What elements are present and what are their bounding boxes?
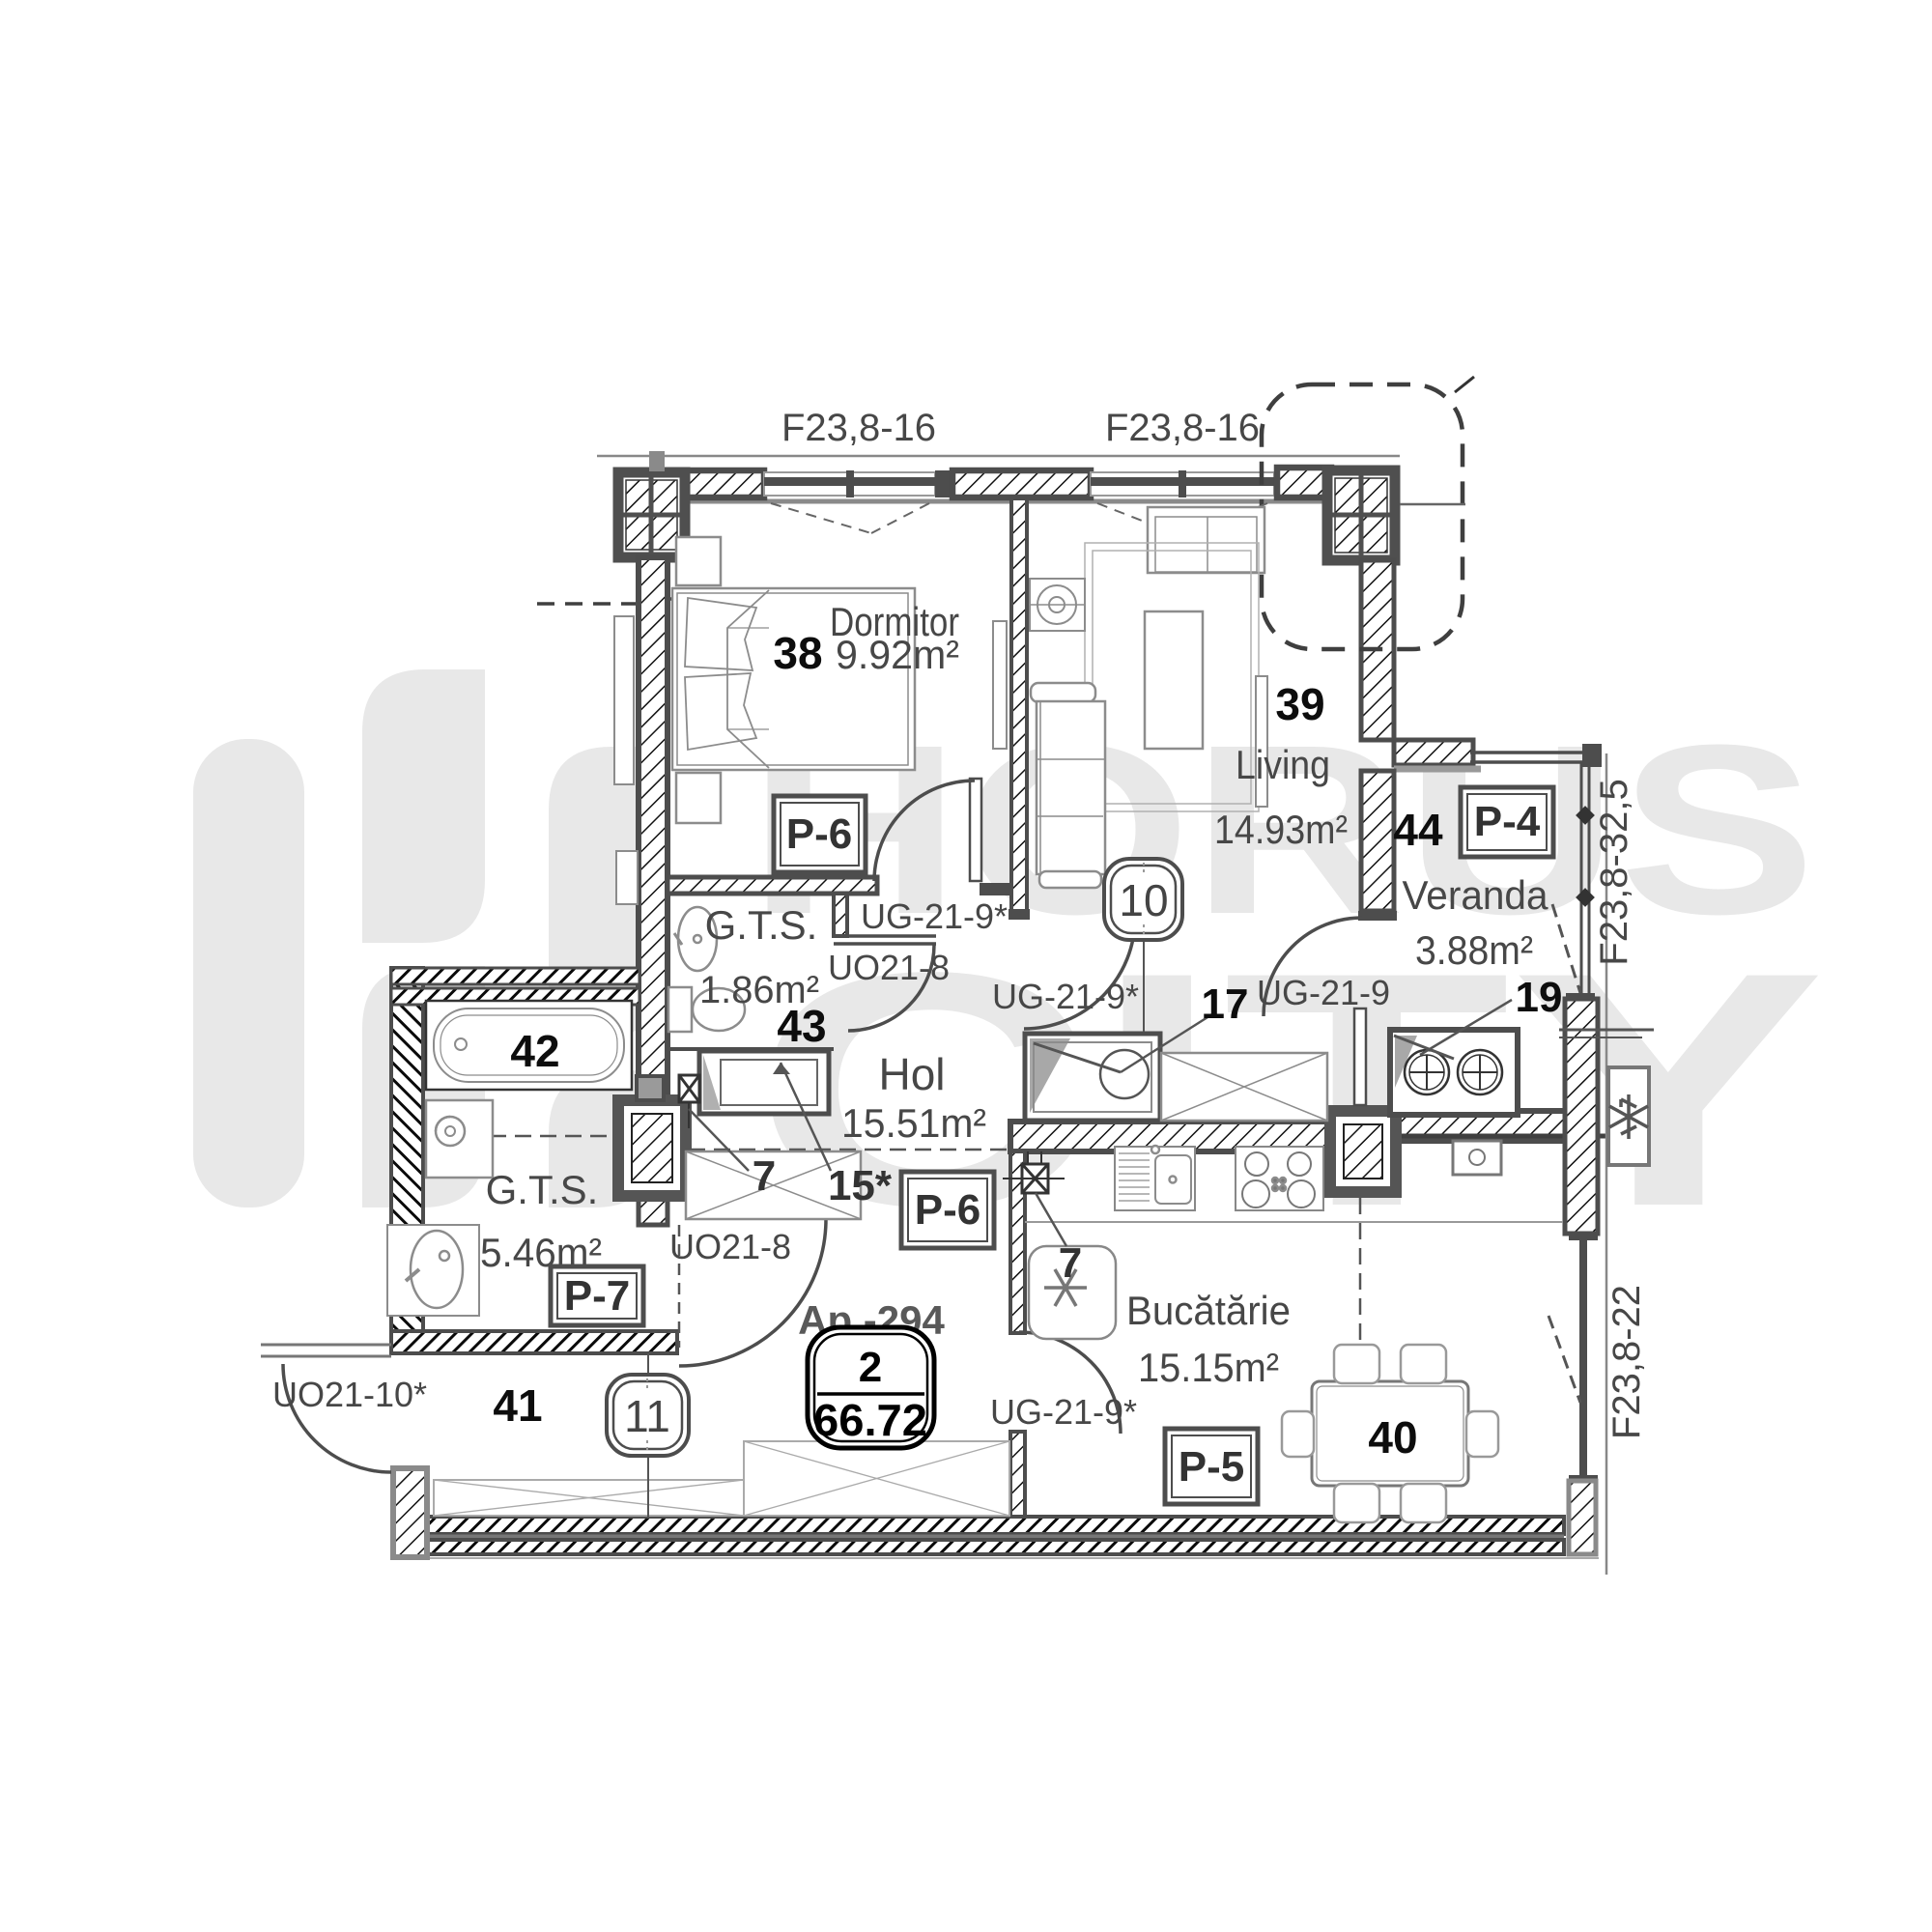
svg-text:F23,8-16: F23,8-16	[781, 407, 936, 449]
svg-text:P-4: P-4	[1474, 798, 1541, 845]
svg-text:P-5: P-5	[1179, 1443, 1244, 1491]
svg-text:2: 2	[859, 1344, 882, 1391]
svg-text:P-6: P-6	[915, 1186, 980, 1234]
svg-text:UO21-8: UO21-8	[828, 948, 950, 987]
svg-text:UG-21-9: UG-21-9	[1257, 973, 1390, 1012]
svg-text:UO21-8: UO21-8	[669, 1227, 791, 1266]
svg-text:15.15m²: 15.15m²	[1138, 1345, 1279, 1390]
svg-text:F23,8-32,5: F23,8-32,5	[1593, 779, 1635, 965]
svg-text:7: 7	[1059, 1239, 1082, 1287]
svg-text:11: 11	[624, 1391, 670, 1441]
svg-text:19: 19	[1516, 974, 1563, 1021]
svg-text:Bucătărie: Bucătărie	[1126, 1288, 1291, 1333]
svg-text:9.92m²: 9.92m²	[836, 632, 959, 677]
svg-text:44: 44	[1393, 805, 1443, 855]
svg-text:UG-21-9*: UG-21-9*	[990, 1392, 1137, 1432]
svg-text:G.T.S.: G.T.S.	[486, 1167, 599, 1212]
svg-text:G.T.S.: G.T.S.	[705, 902, 818, 948]
svg-text:UG-21-9*: UG-21-9*	[992, 977, 1139, 1016]
svg-text:7: 7	[753, 1152, 776, 1200]
svg-text:14.93m²: 14.93m²	[1214, 807, 1348, 852]
svg-text:43: 43	[777, 1001, 826, 1051]
svg-text:66.72: 66.72	[813, 1395, 927, 1445]
svg-text:F23,8-16: F23,8-16	[1105, 407, 1260, 449]
svg-text:Veranda: Veranda	[1403, 872, 1549, 918]
svg-text:3.88m²: 3.88m²	[1415, 927, 1533, 973]
svg-text:15*: 15*	[828, 1162, 893, 1209]
svg-text:P-6: P-6	[786, 810, 852, 858]
svg-text:39: 39	[1275, 679, 1324, 729]
svg-text:41: 41	[493, 1380, 542, 1431]
svg-text:F23,8-22: F23,8-22	[1605, 1285, 1648, 1439]
svg-text:Hol: Hol	[878, 1049, 945, 1099]
svg-text:15.51m²: 15.51m²	[841, 1100, 986, 1146]
svg-text:P-7: P-7	[564, 1272, 630, 1320]
svg-text:42: 42	[510, 1026, 559, 1076]
svg-text:UG-21-9*: UG-21-9*	[861, 896, 1008, 936]
svg-text:40: 40	[1368, 1412, 1417, 1463]
svg-text:38: 38	[773, 628, 822, 678]
svg-text:UO21-10*: UO21-10*	[272, 1375, 427, 1414]
svg-text:Living: Living	[1236, 742, 1330, 787]
svg-text:10: 10	[1119, 875, 1168, 925]
svg-text:17: 17	[1202, 980, 1249, 1028]
